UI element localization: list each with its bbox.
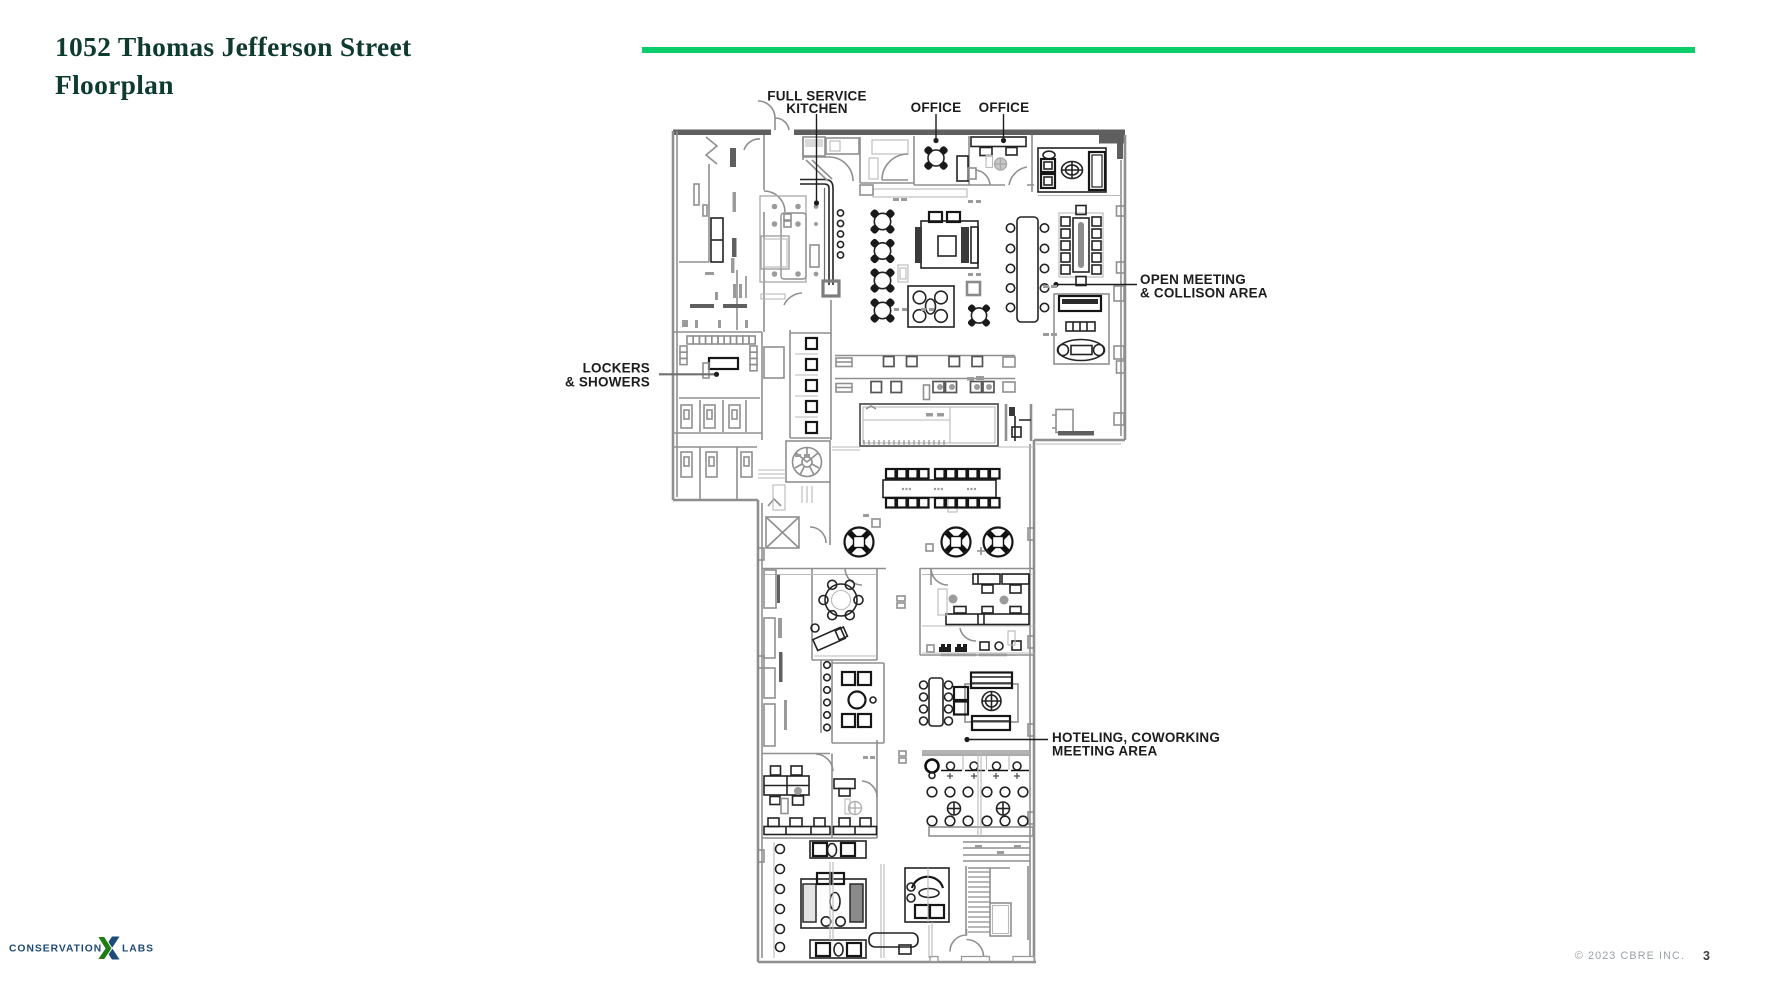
svg-text:& SHOWERS: & SHOWERS — [565, 375, 650, 390]
svg-text:KITCHEN: KITCHEN — [786, 101, 847, 116]
svg-text:& COLLISON AREA: & COLLISON AREA — [1140, 286, 1268, 301]
svg-text:LABS: LABS — [122, 944, 154, 955]
svg-text:OFFICE: OFFICE — [979, 100, 1030, 115]
svg-text:OFFICE: OFFICE — [911, 100, 962, 115]
svg-text:LOCKERS: LOCKERS — [583, 361, 650, 376]
svg-text:MEETING AREA: MEETING AREA — [1052, 744, 1157, 759]
svg-text:CONSERVATION: CONSERVATION — [9, 944, 102, 955]
